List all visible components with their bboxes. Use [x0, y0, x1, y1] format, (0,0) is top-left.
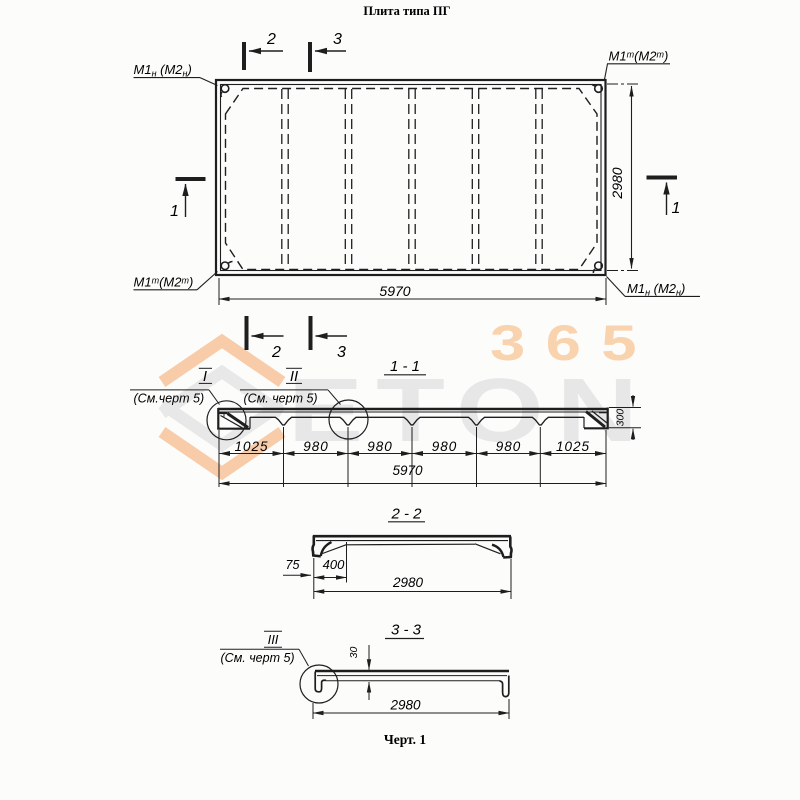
svg-text:(См.черт 5): (См.черт 5) [134, 392, 205, 406]
svg-text:1025: 1025 [234, 439, 268, 454]
svg-text:980: 980 [432, 439, 458, 454]
svg-text:300: 300 [615, 409, 627, 427]
svg-text:М1н (М2н): М1н (М2н) [627, 281, 685, 298]
svg-text:(См. черт 5): (См. черт 5) [221, 651, 295, 665]
svg-text:2 - 2: 2 - 2 [390, 506, 422, 523]
svg-text:980: 980 [303, 439, 329, 454]
svg-text:(См. черт 5): (См. черт 5) [244, 392, 318, 406]
svg-text:2980: 2980 [389, 698, 421, 713]
svg-text:2980: 2980 [609, 167, 625, 199]
svg-text:3: 3 [337, 344, 346, 361]
svg-text:980: 980 [496, 439, 522, 454]
svg-text:30: 30 [348, 647, 360, 659]
svg-text:2980: 2980 [392, 575, 424, 590]
svg-text:2: 2 [266, 31, 276, 48]
svg-text:II: II [290, 368, 298, 385]
svg-text:III: III [268, 632, 279, 647]
svg-text:5970: 5970 [379, 283, 410, 299]
svg-text:1: 1 [672, 200, 681, 217]
svg-text:1 - 1: 1 - 1 [390, 358, 420, 375]
svg-text:980: 980 [367, 439, 393, 454]
svg-text:1025: 1025 [556, 439, 590, 454]
svg-text:3: 3 [333, 31, 342, 48]
svg-text:М1т(М2т): М1т(М2т) [134, 275, 194, 290]
svg-text:365: 365 [490, 315, 657, 371]
svg-text:М1н (М2н): М1н (М2н) [134, 62, 192, 79]
svg-text:I: I [203, 368, 207, 385]
svg-text:75: 75 [286, 558, 300, 572]
svg-text:Черт. 1: Черт. 1 [384, 732, 427, 747]
svg-text:2: 2 [271, 344, 281, 361]
svg-text:3 - 3: 3 - 3 [391, 622, 422, 639]
svg-text:5970: 5970 [392, 463, 423, 478]
svg-text:Плита типа ПГ: Плита типа ПГ [363, 4, 450, 18]
svg-text:М1т(М2т): М1т(М2т) [609, 49, 669, 64]
svg-text:1: 1 [170, 203, 179, 220]
svg-text:400: 400 [323, 557, 345, 572]
